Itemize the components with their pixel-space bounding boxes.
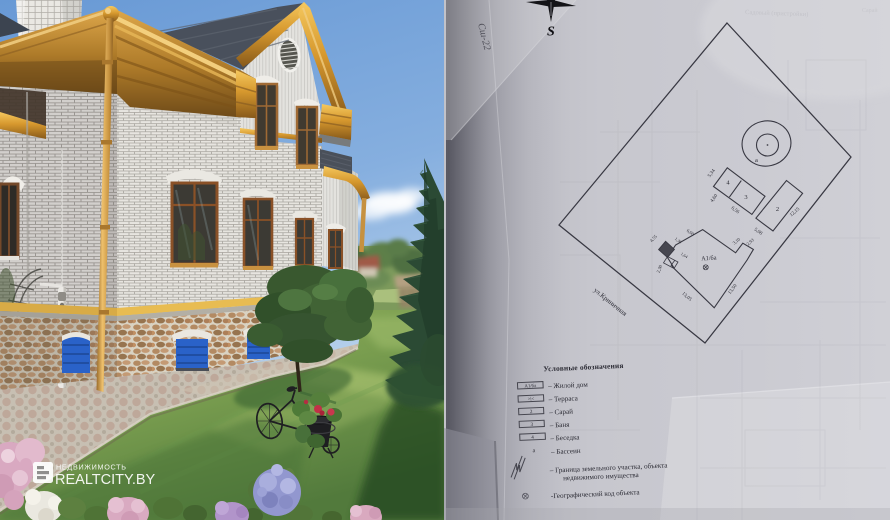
- svg-text:– Сарай: – Сарай: [548, 408, 573, 417]
- svg-text:НЕДВИЖИМОСТЬ: НЕДВИЖИМОСТЬ: [56, 463, 127, 472]
- svg-text:2: 2: [776, 206, 779, 213]
- svg-text:– Баня: – Баня: [549, 421, 571, 430]
- svg-text:REALTCITY.BY: REALTCITY.BY: [55, 472, 156, 488]
- svg-text:3: 3: [744, 194, 747, 201]
- svg-text:– Бассеин: – Бассеин: [550, 447, 581, 456]
- svg-text:S: S: [547, 25, 555, 40]
- svg-text:Сарай: Сарай: [862, 7, 878, 14]
- svg-text:– Беседка: – Беседка: [549, 433, 580, 442]
- svg-text:А1/ба: А1/ба: [701, 254, 717, 262]
- svg-text:>|<: >|<: [528, 397, 535, 402]
- svg-text:а: а: [755, 157, 758, 164]
- svg-text:– Терраса: – Терраса: [548, 394, 579, 403]
- svg-text:А1/бл: А1/бл: [524, 384, 537, 390]
